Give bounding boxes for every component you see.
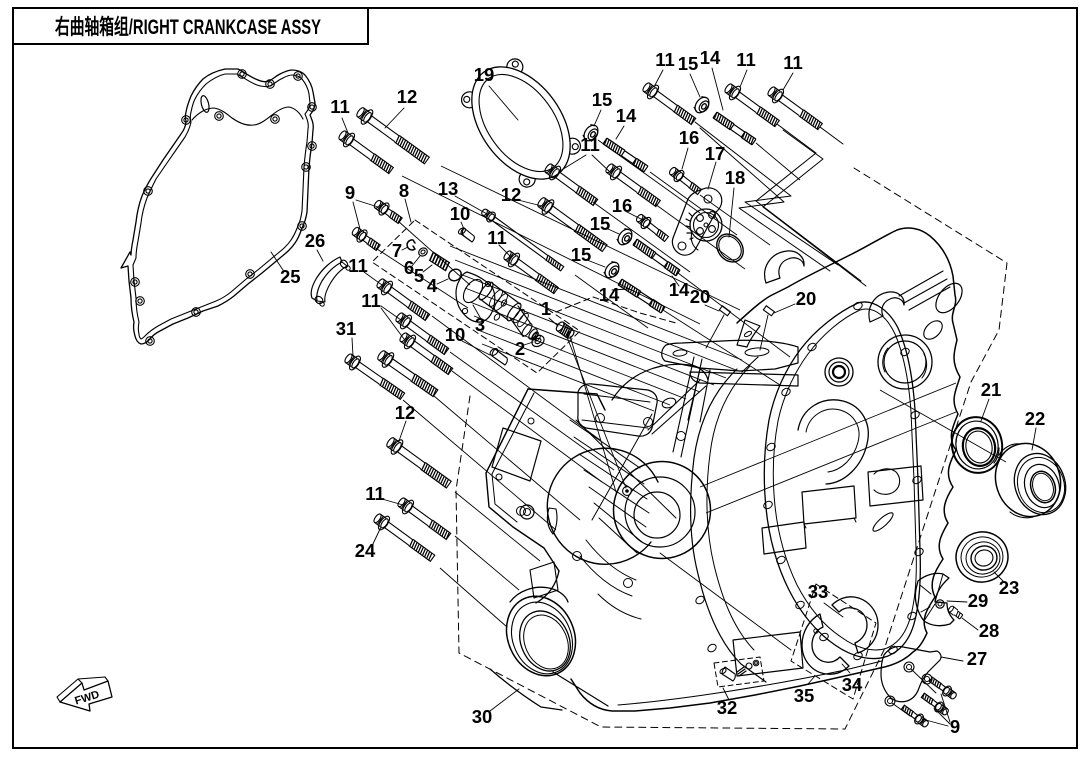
svg-text:12: 12 [395,402,416,423]
svg-text:21: 21 [981,379,1002,400]
svg-text:10: 10 [450,203,471,224]
svg-text:11: 11 [361,290,381,311]
svg-text:31: 31 [336,318,357,339]
svg-text:12: 12 [501,184,522,205]
svg-text:11: 11 [348,255,368,276]
svg-text:27: 27 [967,648,988,669]
svg-text:34: 34 [842,674,863,695]
svg-text:20: 20 [796,288,817,309]
svg-text:右曲轴箱组/RIGHT CRANKCASE ASSY: 右曲轴箱组/RIGHT CRANKCASE ASSY [55,15,321,39]
svg-text:25: 25 [280,266,301,287]
svg-text:33: 33 [808,581,829,602]
svg-text:13: 13 [438,178,459,199]
svg-text:30: 30 [472,706,493,727]
svg-text:29: 29 [968,590,989,611]
svg-text:14: 14 [669,279,690,300]
svg-text:26: 26 [305,230,326,251]
svg-text:14: 14 [616,105,637,126]
svg-text:9: 9 [345,182,355,203]
svg-text:15: 15 [678,53,699,74]
svg-text:4: 4 [427,275,438,296]
svg-text:28: 28 [979,620,1000,641]
svg-text:17: 17 [705,143,726,164]
svg-text:35: 35 [794,685,815,706]
svg-text:22: 22 [1025,408,1046,429]
svg-text:1: 1 [541,298,551,319]
svg-text:19: 19 [474,64,495,85]
svg-text:7: 7 [392,240,402,261]
svg-text:15: 15 [571,244,592,265]
svg-text:9: 9 [950,716,960,737]
svg-text:20: 20 [690,286,711,307]
svg-text:11: 11 [330,96,350,117]
svg-text:32: 32 [717,697,738,718]
svg-text:15: 15 [592,89,613,110]
svg-text:11: 11 [580,134,600,155]
svg-text:11: 11 [655,49,675,70]
svg-text:15: 15 [590,213,611,234]
svg-text:16: 16 [679,127,700,148]
svg-text:18: 18 [725,167,746,188]
svg-text:11: 11 [365,483,385,504]
svg-text:11: 11 [487,227,507,248]
svg-text:2: 2 [515,338,525,359]
svg-text:11: 11 [736,49,756,70]
svg-text:12: 12 [397,86,418,107]
svg-text:11: 11 [783,52,803,73]
svg-text:24: 24 [355,540,376,561]
svg-text:14: 14 [700,47,721,68]
svg-text:8: 8 [399,180,409,201]
svg-text:16: 16 [612,195,633,216]
svg-text:23: 23 [999,577,1020,598]
svg-text:5: 5 [414,265,424,286]
